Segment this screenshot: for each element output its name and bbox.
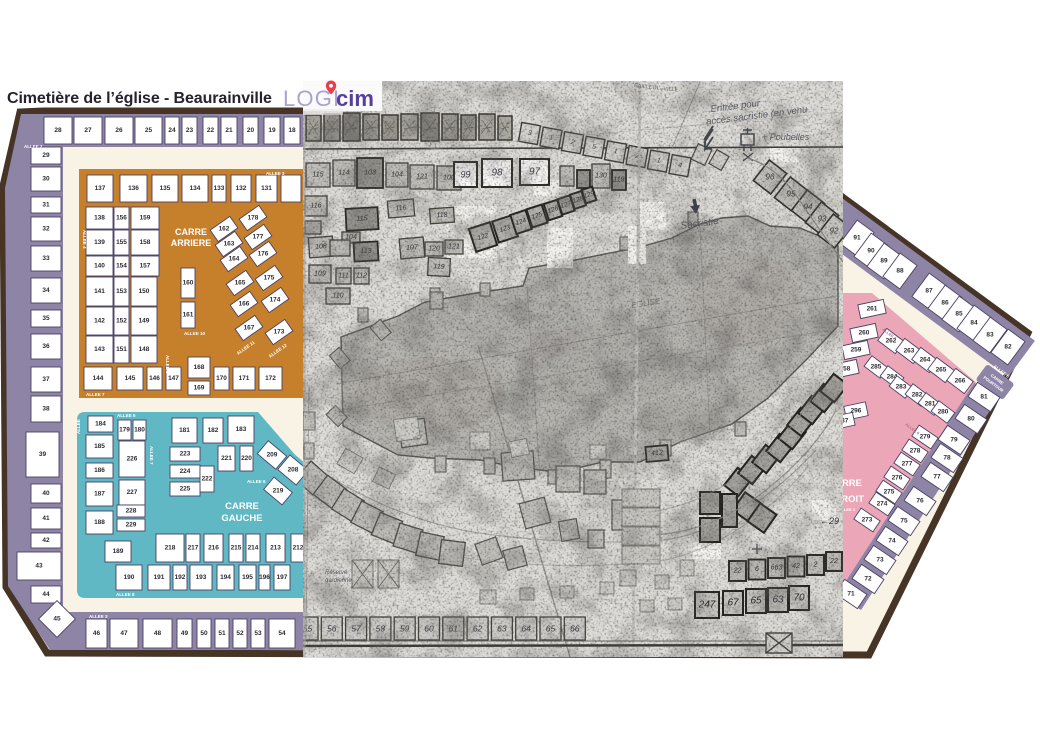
svg-text:189: 189 bbox=[113, 548, 124, 555]
svg-text:285: 285 bbox=[871, 364, 882, 371]
svg-text:22: 22 bbox=[207, 127, 215, 134]
svg-text:266: 266 bbox=[955, 378, 966, 385]
svg-text:GAUCHE: GAUCHE bbox=[221, 513, 262, 524]
svg-text:227: 227 bbox=[127, 489, 138, 496]
svg-text:194: 194 bbox=[220, 574, 231, 581]
svg-text:195: 195 bbox=[242, 574, 253, 581]
svg-text:CARRE: CARRE bbox=[175, 227, 207, 237]
svg-text:146: 146 bbox=[149, 375, 160, 382]
svg-text:ALLEE 2: ALLEE 2 bbox=[24, 144, 43, 149]
svg-text:88: 88 bbox=[896, 267, 904, 274]
svg-text:261: 261 bbox=[867, 306, 878, 313]
svg-text:44: 44 bbox=[42, 591, 50, 598]
svg-text:87: 87 bbox=[925, 287, 933, 294]
svg-text:167: 167 bbox=[244, 325, 255, 332]
svg-text:160: 160 bbox=[183, 280, 194, 287]
svg-text:83: 83 bbox=[986, 331, 994, 338]
svg-text:152: 152 bbox=[116, 318, 127, 325]
svg-text:77: 77 bbox=[933, 474, 941, 481]
svg-text:224: 224 bbox=[180, 468, 191, 475]
svg-text:30: 30 bbox=[42, 176, 50, 183]
svg-text:151: 151 bbox=[116, 346, 127, 353]
svg-text:190: 190 bbox=[124, 574, 135, 581]
svg-text:148: 148 bbox=[139, 346, 150, 353]
svg-text:19: 19 bbox=[268, 127, 276, 134]
svg-text:153: 153 bbox=[116, 288, 127, 295]
svg-text:220: 220 bbox=[241, 455, 252, 462]
svg-text:28: 28 bbox=[54, 127, 62, 134]
svg-text:33: 33 bbox=[42, 255, 50, 262]
svg-text:221: 221 bbox=[221, 455, 232, 462]
svg-text:25: 25 bbox=[145, 127, 153, 134]
svg-text:162: 162 bbox=[219, 226, 230, 233]
svg-text:145: 145 bbox=[125, 375, 136, 382]
svg-text:223: 223 bbox=[180, 451, 191, 458]
svg-text:139: 139 bbox=[94, 239, 105, 246]
svg-text:cim: cim bbox=[336, 86, 374, 111]
svg-text:226: 226 bbox=[127, 456, 138, 463]
svg-text:176: 176 bbox=[258, 251, 269, 258]
svg-text:184: 184 bbox=[95, 421, 106, 428]
svg-text:ALLEE 5: ALLEE 5 bbox=[117, 413, 136, 418]
svg-text:45: 45 bbox=[53, 616, 61, 623]
svg-text:165: 165 bbox=[235, 280, 246, 287]
svg-text:171: 171 bbox=[239, 375, 250, 382]
svg-text:158: 158 bbox=[140, 239, 151, 246]
svg-text:40: 40 bbox=[42, 490, 50, 497]
svg-text:173: 173 bbox=[274, 329, 285, 336]
svg-text:264: 264 bbox=[920, 357, 931, 364]
svg-text:147: 147 bbox=[168, 375, 179, 382]
svg-text:73: 73 bbox=[876, 557, 884, 564]
svg-text:186: 186 bbox=[94, 467, 105, 474]
svg-text:131: 131 bbox=[261, 185, 272, 192]
svg-text:46: 46 bbox=[93, 630, 101, 637]
svg-text:193: 193 bbox=[196, 574, 207, 581]
svg-text:ALLEE 6: ALLEE 6 bbox=[247, 479, 266, 484]
svg-text:47: 47 bbox=[120, 630, 128, 637]
svg-text:157: 157 bbox=[140, 263, 151, 270]
svg-text:166: 166 bbox=[239, 301, 250, 308]
svg-text:24: 24 bbox=[168, 127, 176, 134]
svg-text:218: 218 bbox=[165, 545, 176, 552]
svg-text:155: 155 bbox=[116, 239, 127, 246]
svg-text:ALLEE 3: ALLEE 3 bbox=[266, 171, 285, 176]
svg-text:263: 263 bbox=[904, 348, 915, 355]
svg-text:ALLEE 7: ALLEE 7 bbox=[86, 392, 105, 397]
svg-text:132: 132 bbox=[236, 185, 247, 192]
svg-text:188: 188 bbox=[94, 519, 105, 526]
svg-text:135: 135 bbox=[160, 185, 171, 192]
svg-text:180: 180 bbox=[134, 427, 145, 434]
svg-text:90: 90 bbox=[867, 248, 875, 255]
svg-text:79: 79 bbox=[950, 437, 958, 444]
svg-text:21: 21 bbox=[225, 127, 233, 134]
svg-text:217: 217 bbox=[188, 545, 199, 552]
svg-text:182: 182 bbox=[208, 427, 219, 434]
svg-text:208: 208 bbox=[288, 467, 299, 474]
svg-text:175: 175 bbox=[264, 275, 275, 282]
svg-text:ALLEE 7: ALLEE 7 bbox=[149, 446, 154, 465]
svg-text:34: 34 bbox=[42, 287, 50, 294]
svg-text:136: 136 bbox=[128, 185, 139, 192]
svg-text:280: 280 bbox=[938, 409, 949, 416]
svg-text:283: 283 bbox=[896, 384, 907, 391]
svg-text:192: 192 bbox=[175, 574, 186, 581]
svg-text:50: 50 bbox=[200, 630, 208, 637]
svg-text:39: 39 bbox=[39, 451, 47, 458]
svg-text:42: 42 bbox=[42, 537, 50, 544]
svg-text:197: 197 bbox=[277, 574, 288, 581]
svg-text:187: 187 bbox=[94, 491, 105, 498]
svg-text:91: 91 bbox=[853, 235, 861, 242]
svg-text:215: 215 bbox=[231, 545, 242, 552]
svg-text:51: 51 bbox=[218, 630, 226, 637]
svg-text:76: 76 bbox=[916, 498, 924, 505]
svg-text:229: 229 bbox=[126, 522, 137, 529]
svg-text:27: 27 bbox=[84, 127, 92, 134]
svg-text:174: 174 bbox=[270, 297, 281, 304]
svg-text:78: 78 bbox=[943, 455, 951, 462]
svg-text:183: 183 bbox=[236, 426, 247, 433]
svg-text:23: 23 bbox=[186, 127, 194, 134]
svg-text:214: 214 bbox=[248, 545, 259, 552]
svg-text:275: 275 bbox=[884, 489, 895, 496]
svg-text:81: 81 bbox=[980, 394, 988, 401]
svg-text:84: 84 bbox=[970, 319, 978, 326]
svg-text:72: 72 bbox=[864, 576, 872, 583]
svg-text:142: 142 bbox=[94, 318, 105, 325]
svg-text:49: 49 bbox=[181, 630, 189, 637]
svg-text:18: 18 bbox=[288, 127, 296, 134]
svg-text:35: 35 bbox=[42, 315, 50, 322]
svg-text:29: 29 bbox=[42, 152, 50, 159]
svg-text:143: 143 bbox=[94, 346, 105, 353]
svg-text:52: 52 bbox=[236, 630, 244, 637]
svg-text:225: 225 bbox=[180, 486, 191, 493]
svg-text:209: 209 bbox=[267, 452, 278, 459]
svg-text:54: 54 bbox=[278, 630, 286, 637]
svg-text:32: 32 bbox=[42, 226, 50, 233]
svg-text:ALLEE 8: ALLEE 8 bbox=[165, 355, 170, 374]
svg-text:20: 20 bbox=[247, 127, 255, 134]
svg-text:170: 170 bbox=[216, 375, 227, 382]
svg-text:219: 219 bbox=[273, 488, 284, 495]
svg-text:259: 259 bbox=[851, 347, 862, 354]
svg-text:48: 48 bbox=[154, 630, 162, 637]
svg-text:177: 177 bbox=[253, 234, 264, 241]
svg-text:216: 216 bbox=[208, 545, 219, 552]
svg-text:140: 140 bbox=[94, 263, 105, 270]
svg-text:185: 185 bbox=[94, 443, 105, 450]
svg-text:265: 265 bbox=[936, 367, 947, 374]
svg-text:31: 31 bbox=[42, 202, 50, 209]
svg-text:273: 273 bbox=[862, 516, 873, 523]
svg-text:144: 144 bbox=[93, 375, 104, 382]
svg-text:86: 86 bbox=[941, 299, 949, 306]
svg-text:191: 191 bbox=[154, 574, 165, 581]
svg-text:ALLEE 10: ALLEE 10 bbox=[184, 331, 206, 336]
svg-text:161: 161 bbox=[183, 312, 194, 319]
svg-text:181: 181 bbox=[179, 427, 190, 434]
svg-text:74: 74 bbox=[888, 538, 896, 545]
svg-text:53: 53 bbox=[254, 630, 262, 637]
svg-text:ALLEE 8: ALLEE 8 bbox=[116, 592, 135, 597]
svg-text:178: 178 bbox=[248, 215, 259, 222]
svg-text:ALLEE 4: ALLEE 4 bbox=[82, 230, 87, 249]
svg-text:279: 279 bbox=[920, 434, 931, 441]
svg-text:172: 172 bbox=[265, 375, 276, 382]
svg-text:156: 156 bbox=[116, 215, 127, 222]
svg-text:282: 282 bbox=[912, 392, 923, 399]
svg-text:ARRIERE: ARRIERE bbox=[171, 238, 212, 248]
svg-text:89: 89 bbox=[880, 258, 888, 265]
svg-text:154: 154 bbox=[116, 263, 127, 270]
svg-text:168: 168 bbox=[194, 364, 205, 371]
svg-text:149: 149 bbox=[139, 318, 150, 325]
svg-text:276: 276 bbox=[892, 475, 903, 482]
svg-text:277: 277 bbox=[902, 461, 913, 468]
svg-text:85: 85 bbox=[955, 310, 963, 317]
svg-text:ALLEE: ALLEE bbox=[76, 419, 81, 434]
svg-text:159: 159 bbox=[140, 215, 151, 222]
svg-text:26: 26 bbox=[115, 127, 123, 134]
svg-text:138: 138 bbox=[94, 215, 105, 222]
svg-text:213: 213 bbox=[270, 545, 281, 552]
svg-text:278: 278 bbox=[910, 448, 921, 455]
svg-text:137: 137 bbox=[95, 185, 106, 192]
svg-text:41: 41 bbox=[42, 515, 50, 522]
svg-text:75: 75 bbox=[900, 518, 908, 525]
svg-text:43: 43 bbox=[35, 563, 43, 570]
svg-text:ALLEE 3: ALLEE 3 bbox=[89, 614, 108, 619]
svg-text:71: 71 bbox=[847, 591, 855, 598]
svg-text:133: 133 bbox=[214, 185, 225, 192]
svg-text:150: 150 bbox=[139, 288, 150, 295]
svg-text:141: 141 bbox=[94, 288, 105, 295]
svg-text:274: 274 bbox=[877, 501, 888, 508]
svg-text:179: 179 bbox=[119, 427, 130, 434]
svg-text:163: 163 bbox=[224, 241, 235, 248]
svg-text:38: 38 bbox=[42, 406, 50, 413]
svg-text:196: 196 bbox=[259, 574, 270, 581]
svg-text:37: 37 bbox=[42, 376, 50, 383]
svg-text:169: 169 bbox=[194, 385, 205, 392]
svg-text:260: 260 bbox=[859, 330, 870, 337]
svg-text:134: 134 bbox=[190, 185, 201, 192]
svg-text:80: 80 bbox=[967, 416, 975, 423]
svg-text:82: 82 bbox=[1004, 343, 1012, 350]
svg-text:228: 228 bbox=[126, 508, 137, 515]
svg-text:164: 164 bbox=[229, 256, 240, 263]
svg-text:222: 222 bbox=[202, 476, 213, 483]
svg-text:CARRE: CARRE bbox=[225, 501, 259, 512]
svg-text:36: 36 bbox=[42, 343, 50, 350]
